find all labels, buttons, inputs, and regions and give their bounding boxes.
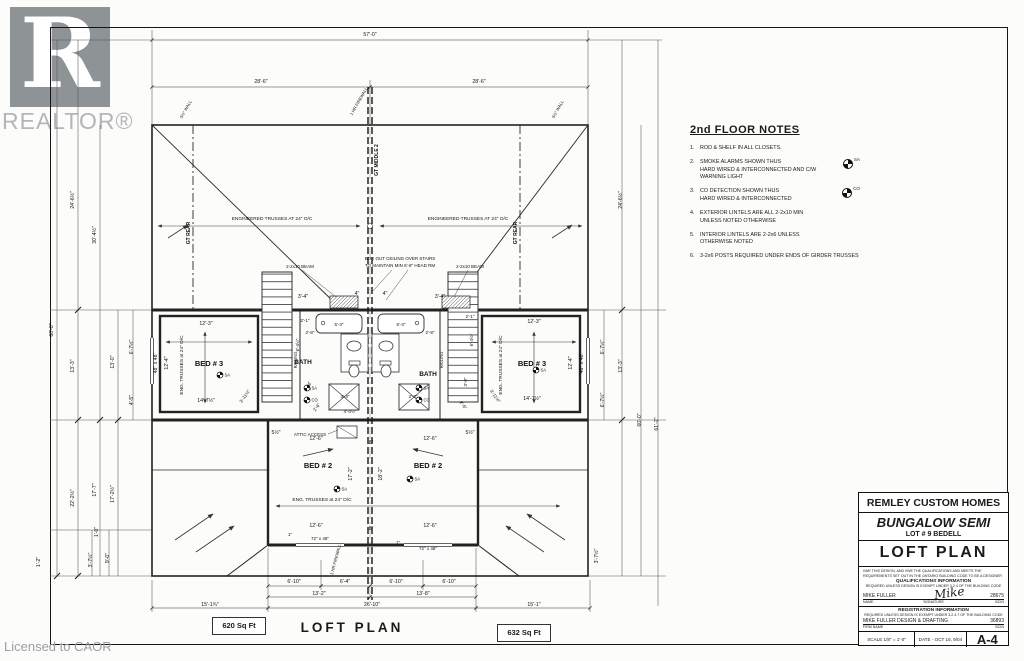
dim-label: 14'-7½" xyxy=(523,395,541,402)
dim-label: ATTIC ACCESS xyxy=(294,432,326,437)
designer-name: MIKE FULLER xyxy=(863,593,922,600)
dim-label: 12'-6" xyxy=(423,523,436,529)
dim-label: 3'-11½" xyxy=(238,388,252,404)
designer-declaration: I/WE THIS DESIGN, AND I/WE THE QUALIFICA… xyxy=(859,567,1008,578)
dim-label: 5½" WALL xyxy=(179,99,194,119)
dim-label: 18'-2" xyxy=(378,467,384,480)
notes-list: 1.ROD & SHELF IN ALL CLOSETS.2.SMOKE ALA… xyxy=(690,145,875,261)
dim-label: 12'-4" xyxy=(568,356,574,369)
dim-label: 13'-3" xyxy=(70,359,76,372)
smoke-alarm-symbol: SA xyxy=(843,159,860,169)
dim-label: 3'-4" xyxy=(435,294,445,300)
truss-node xyxy=(368,224,373,229)
sheet-number: A-4 xyxy=(967,632,1008,647)
dim-label: 6'-4" xyxy=(340,579,350,585)
girder-label: GT REAR xyxy=(186,221,192,244)
note-number: 4. xyxy=(690,210,700,218)
dim-label: 48" x 48" xyxy=(579,352,585,373)
note-number: 5. xyxy=(690,232,700,240)
detector-label: CO xyxy=(853,186,860,193)
room-label-bed3-left: BED # 3 xyxy=(195,359,223,368)
smoke-alarm-symbol: SA xyxy=(304,385,317,391)
room-label-bath-right: BATH xyxy=(419,371,437,378)
signature-label: SIGNATURE xyxy=(910,600,957,604)
dim-label: 30'-4½" xyxy=(91,226,98,244)
dim-label: 9'-0" xyxy=(105,553,111,563)
dim-label: 8" xyxy=(369,526,374,532)
room-label-bed2-left: BED # 2 xyxy=(304,461,332,470)
dim-label: 6'-10" xyxy=(442,579,455,585)
dim-label: 3'-7½" xyxy=(593,549,600,564)
dim-label: 6'-7½" xyxy=(599,340,606,355)
detector-label: SA xyxy=(342,487,348,492)
title-block: REMLEY CUSTOM HOMES BUNGALOW SEMI LOT # … xyxy=(858,492,1009,646)
dim-label: 1" xyxy=(288,532,293,537)
dim-label: 4" xyxy=(383,291,388,297)
dim-label: 6'-7½" xyxy=(599,393,606,408)
dim-label: 1'-0" xyxy=(94,527,100,537)
dim-label: 4'-0½" xyxy=(344,408,357,414)
date-value: DATE - OCT 16, 9/04 xyxy=(915,632,967,647)
company-name: REMLEY CUSTOM HOMES xyxy=(859,493,1008,513)
firm-bcin: 36893 xyxy=(959,618,1004,625)
smoke-alarm-symbol: SA xyxy=(533,367,546,373)
detector-label: SA xyxy=(854,157,860,164)
co-detector-symbol: CO xyxy=(842,188,860,198)
dim-label: 13'-0" xyxy=(110,355,116,368)
dim-label: 12'-3" xyxy=(527,319,540,325)
dim-ticks xyxy=(54,307,625,579)
detector-label: CO xyxy=(312,398,319,403)
right-unit-area-badge: 632 Sq Ft xyxy=(497,624,551,642)
smoke-alarm-symbol: SA xyxy=(334,486,347,492)
detector-label: SA xyxy=(541,368,547,373)
note-item: 6.3-2x6 POSTS REQUIRED UNDER ENDS OF GIR… xyxy=(690,253,860,261)
note-text: EXTERIOR LINTELS ARE ALL 2-2x10 MIN UNLE… xyxy=(700,210,860,226)
registration-heading: REGISTRATION INFORMATION xyxy=(859,606,1008,613)
note-item: 1.ROD & SHELF IN ALL CLOSETS. xyxy=(690,145,860,153)
plan-title: LOFT PLAN xyxy=(292,620,412,635)
dim-label: 5½" xyxy=(271,429,280,436)
note-number: 2. xyxy=(690,159,700,167)
dim-label: 48" x 48" xyxy=(153,352,159,373)
dim-label: 6'-10" xyxy=(287,579,300,585)
note-text: SMOKE ALARMS SHOWN THUS HARD WIRED & INT… xyxy=(700,159,835,182)
dim-label: 72" x 48" xyxy=(419,546,437,551)
dim-label: 60'-0" xyxy=(637,413,643,426)
dim-label: 3'-3" xyxy=(341,394,350,399)
scale-value: SCALE 1/8" = 1'-0" xyxy=(859,632,915,647)
detector-icon xyxy=(842,188,852,198)
dim-label: 2'-8" xyxy=(426,330,435,335)
dim-label: 8" xyxy=(369,440,374,446)
truss-note: ENGINEERED TRUSSES AT 24" O/C xyxy=(428,216,509,222)
designer-bcin: 28675 xyxy=(977,593,1004,600)
second-floor-notes-panel: 2nd FLOOR NOTES 1.ROD & SHELF IN ALL CLO… xyxy=(690,124,875,267)
note-item: 5.INTERIOR LINTELS ARE 2-2x6 UNLESS OTHE… xyxy=(690,232,860,248)
dim-label: 14'-7½" xyxy=(197,397,215,404)
note-number: 6. xyxy=(690,253,700,261)
co-detector-symbol: CO xyxy=(416,397,431,403)
dim-label: 4'-5" xyxy=(129,395,135,405)
detector-label: SA xyxy=(225,373,231,378)
note-text: 3-2x6 POSTS REQUIRED UNDER ENDS OF GIRDE… xyxy=(700,253,860,261)
lot-number: LOT # 9 BEDELL xyxy=(859,530,1008,541)
dim-label: 24'-6½" xyxy=(69,191,76,209)
smoke-alarm-symbol: SA xyxy=(217,372,230,378)
smoke-alarm-symbol: SA xyxy=(416,385,429,391)
dim-label: 3'-4" xyxy=(298,294,308,300)
truss-note: ENG. TRUSSES at 24" O/C xyxy=(292,497,352,503)
dim-label: 6'-4½" xyxy=(468,333,474,346)
girder-label: GT REAR xyxy=(513,221,519,244)
detector-label: SA xyxy=(312,386,318,391)
note-item: 3.CO DETECTION SHOWN THUS HARD WIRED & I… xyxy=(690,188,860,204)
firm-name-label: FIRM NAME xyxy=(863,625,934,629)
dim-label: 13'-8" xyxy=(416,591,429,597)
detector-label: CO xyxy=(424,398,431,403)
co-detector-symbol: CO xyxy=(304,397,319,403)
dim-label: 60'-0" xyxy=(49,323,55,336)
dim-label: 5'-3" xyxy=(397,322,406,327)
detector-label: SA xyxy=(424,386,430,391)
dim-label: 24'-6½" xyxy=(617,191,624,209)
dim-label: 26'-10" xyxy=(364,602,380,608)
smoke-alarm-symbol: SA xyxy=(407,476,420,482)
boxout-note: BOX OUT CEILING OVER STAIRS xyxy=(365,256,436,261)
beam-label: 2-2x10 BEAM xyxy=(456,264,484,269)
dim-label: 6'-7½" xyxy=(128,340,135,355)
note-text: ROD & SHELF IN ALL CLOSETS. xyxy=(700,145,860,153)
dim-label: 12'-6" xyxy=(423,436,436,442)
dim-label: 28'-6" xyxy=(472,79,485,85)
name-label: NAME xyxy=(863,600,910,604)
note-number: 1. xyxy=(690,145,700,153)
dim-label: 2'-1" xyxy=(466,314,475,319)
dim-label: 72" x 48" xyxy=(311,536,329,541)
bcin-label: BCIN xyxy=(957,600,1004,604)
dim-label: 13'-2" xyxy=(312,591,325,597)
dim-label: 5½" xyxy=(465,429,474,436)
note-number: 3. xyxy=(690,188,700,196)
truss-note: ENG. TRUSSES at 24" O/C xyxy=(498,335,504,395)
note-item: 4.EXTERIOR LINTELS ARE ALL 2-2x10 MIN UN… xyxy=(690,210,860,226)
dim-label: 1'-2" xyxy=(36,557,42,567)
dim-label: 2'-8" xyxy=(306,330,315,335)
dim-label: RAILING xyxy=(293,352,298,369)
dim-label: 28'-6" xyxy=(254,79,267,85)
beam-label: 2-2x10 BEAM xyxy=(286,264,314,269)
room-label-bed2-right: BED # 2 xyxy=(414,461,442,470)
license-note: Licensed to CAOR xyxy=(4,639,112,654)
dim-label: 15'-1" xyxy=(527,602,540,608)
notes-title: 2nd FLOOR NOTES xyxy=(690,124,875,136)
dim-label: 17'-2½" xyxy=(109,485,116,503)
dim-label: 5½" WALL xyxy=(551,99,566,119)
dim-label: 2'-6" xyxy=(312,402,321,413)
dim-label: 6'-4½" xyxy=(294,338,300,351)
note-text: INTERIOR LINTELS ARE 2-2x6 UNLESS OTHERW… xyxy=(700,232,860,248)
dim-label: 22'-2½" xyxy=(69,489,76,507)
dim-label: 17'-2" xyxy=(348,467,354,480)
dim-label: 13'-3" xyxy=(618,359,624,372)
dim-label: 1 HR FIREWALL xyxy=(349,86,369,116)
sheet-title: LOFT PLAN xyxy=(859,541,1008,567)
dim-label: 15'-1¾" xyxy=(201,602,219,608)
beam-boxes xyxy=(330,296,470,308)
left-unit-area-badge: 620 Sq Ft xyxy=(212,617,266,635)
dim-label: 61'-2" xyxy=(654,417,660,430)
dim-label: 3'-8" xyxy=(463,377,468,386)
dim-label: 1" xyxy=(396,540,401,545)
firm-bcin-label: BCIN xyxy=(934,625,1005,629)
dim-label: 2'-1" xyxy=(301,318,310,323)
dim-label: 3'-7½" xyxy=(87,553,94,568)
dim-label: 17'-7" xyxy=(92,483,98,496)
firm-name: MIKE FULLER DESIGN & DRAFTING xyxy=(863,618,959,625)
detector-icon xyxy=(843,159,853,169)
truss-note: ENGINEERED TRUSSES AT 24" O/C xyxy=(232,216,313,222)
model-name: BUNGALOW SEMI xyxy=(859,513,1008,530)
note-text: CO DETECTION SHOWN THUS HARD WIRED & INT… xyxy=(700,188,834,204)
designer-signature: Mike xyxy=(934,587,965,599)
note-item: 2.SMOKE ALARMS SHOWN THUS HARD WIRED & I… xyxy=(690,159,860,182)
girder-label: GT MIDDLE 2 xyxy=(374,144,380,176)
dim-label: 6'-10" xyxy=(389,579,402,585)
detector-label: SA xyxy=(415,477,421,482)
dim-label: 12'-3" xyxy=(199,321,212,327)
dim-label: 5'-3" xyxy=(335,322,344,327)
boxout-note: TO MAINTAIN MIN 6'-8" HEAD RM xyxy=(365,263,436,268)
dim-label: 12'-4" xyxy=(164,356,170,369)
dim-label: 57'-0" xyxy=(363,32,376,38)
party-firewall xyxy=(368,87,372,600)
dim-label: 12'-6" xyxy=(309,523,322,529)
dim-label: RAILING xyxy=(439,352,444,369)
dim-label: 4" xyxy=(355,291,360,297)
drawing-sheet: { "branding": { "logo_text": "REALTOR®",… xyxy=(0,0,1024,661)
truss-note: ENG. TRUSSES at 24" O/C xyxy=(179,335,185,395)
